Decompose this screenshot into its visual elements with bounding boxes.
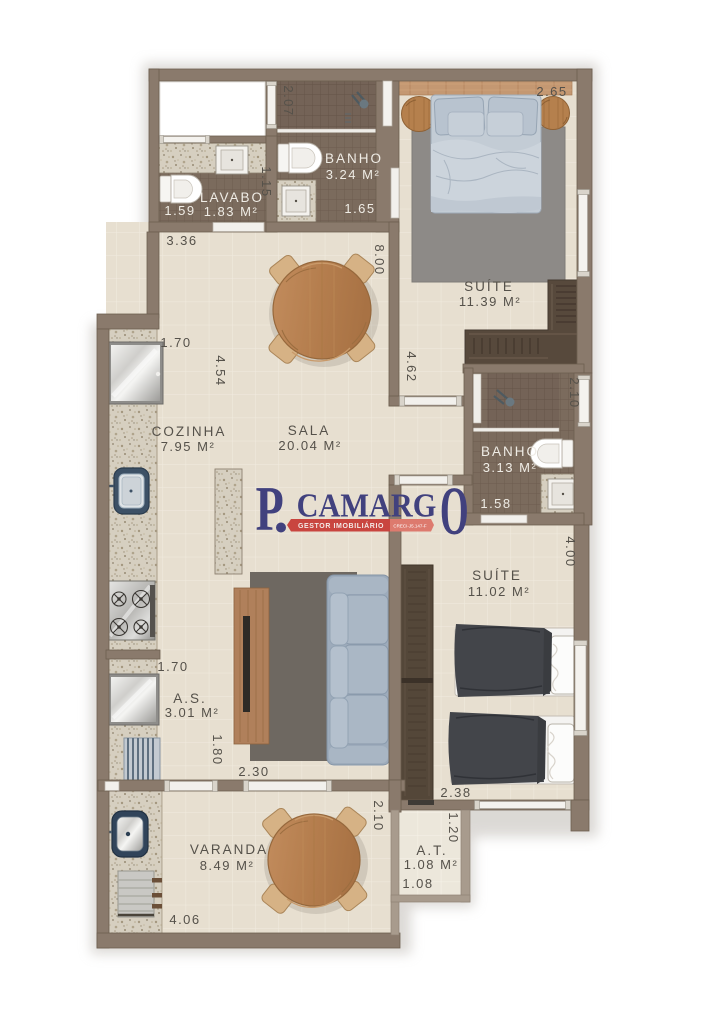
svg-text:COZINHA: COZINHA [152, 424, 227, 439]
svg-text:1.59: 1.59 [164, 203, 195, 218]
svg-text:1.83 M²: 1.83 M² [204, 204, 259, 219]
svg-text:P: P [256, 474, 284, 545]
svg-text:1.58: 1.58 [480, 496, 511, 511]
svg-text:2.10: 2.10 [567, 377, 582, 408]
svg-text:BANHO: BANHO [325, 151, 383, 166]
svg-text:2.07: 2.07 [281, 85, 296, 116]
svg-text:3.01 M²: 3.01 M² [165, 705, 220, 720]
svg-text:1.80: 1.80 [210, 734, 225, 765]
svg-text:A.T.: A.T. [416, 843, 447, 858]
svg-text:GESTOR IMOBILIÁRIO: GESTOR IMOBILIÁRIO [298, 521, 384, 530]
svg-text:SUÍTE: SUÍTE [472, 568, 522, 583]
svg-text:2.38: 2.38 [440, 785, 471, 800]
svg-text:SUÍTE: SUÍTE [464, 279, 514, 294]
svg-text:3.13 M²: 3.13 M² [483, 460, 538, 475]
svg-text:1.70: 1.70 [157, 659, 188, 674]
svg-text:1.08 M²: 1.08 M² [404, 857, 459, 872]
svg-text:2.65: 2.65 [536, 84, 567, 99]
svg-text:1.65: 1.65 [344, 201, 375, 216]
svg-text:11.02 M²: 11.02 M² [468, 584, 530, 599]
svg-text:3.36: 3.36 [166, 233, 197, 248]
svg-text:O: O [440, 473, 469, 550]
svg-text:8.49 M²: 8.49 M² [200, 858, 255, 873]
svg-text:A.S.: A.S. [173, 691, 207, 706]
svg-text:3.24 M²: 3.24 M² [326, 167, 381, 182]
svg-text:4.06: 4.06 [169, 912, 200, 927]
svg-text:BANHO: BANHO [481, 444, 539, 459]
svg-text:8.00: 8.00 [372, 244, 387, 275]
svg-text:1.08: 1.08 [402, 876, 433, 891]
svg-text:4.00: 4.00 [563, 536, 578, 567]
svg-text:1.70: 1.70 [160, 335, 191, 350]
svg-text:4.54: 4.54 [213, 355, 228, 386]
svg-text:LAVABO: LAVABO [200, 190, 264, 205]
svg-text:4.62: 4.62 [404, 351, 419, 382]
svg-text:VARANDA: VARANDA [190, 842, 268, 857]
svg-text:CRECI-J5.147-F: CRECI-J5.147-F [393, 524, 427, 529]
svg-text:7.95 M²: 7.95 M² [161, 439, 216, 454]
svg-text:2.10: 2.10 [371, 800, 386, 831]
svg-text:2.30: 2.30 [238, 764, 269, 779]
svg-text:1.20: 1.20 [446, 812, 461, 843]
svg-text:20.04 M²: 20.04 M² [278, 438, 341, 453]
svg-text:11.39 M²: 11.39 M² [459, 294, 521, 309]
svg-text:1.15: 1.15 [259, 166, 274, 197]
svg-text:SALA: SALA [288, 423, 331, 438]
